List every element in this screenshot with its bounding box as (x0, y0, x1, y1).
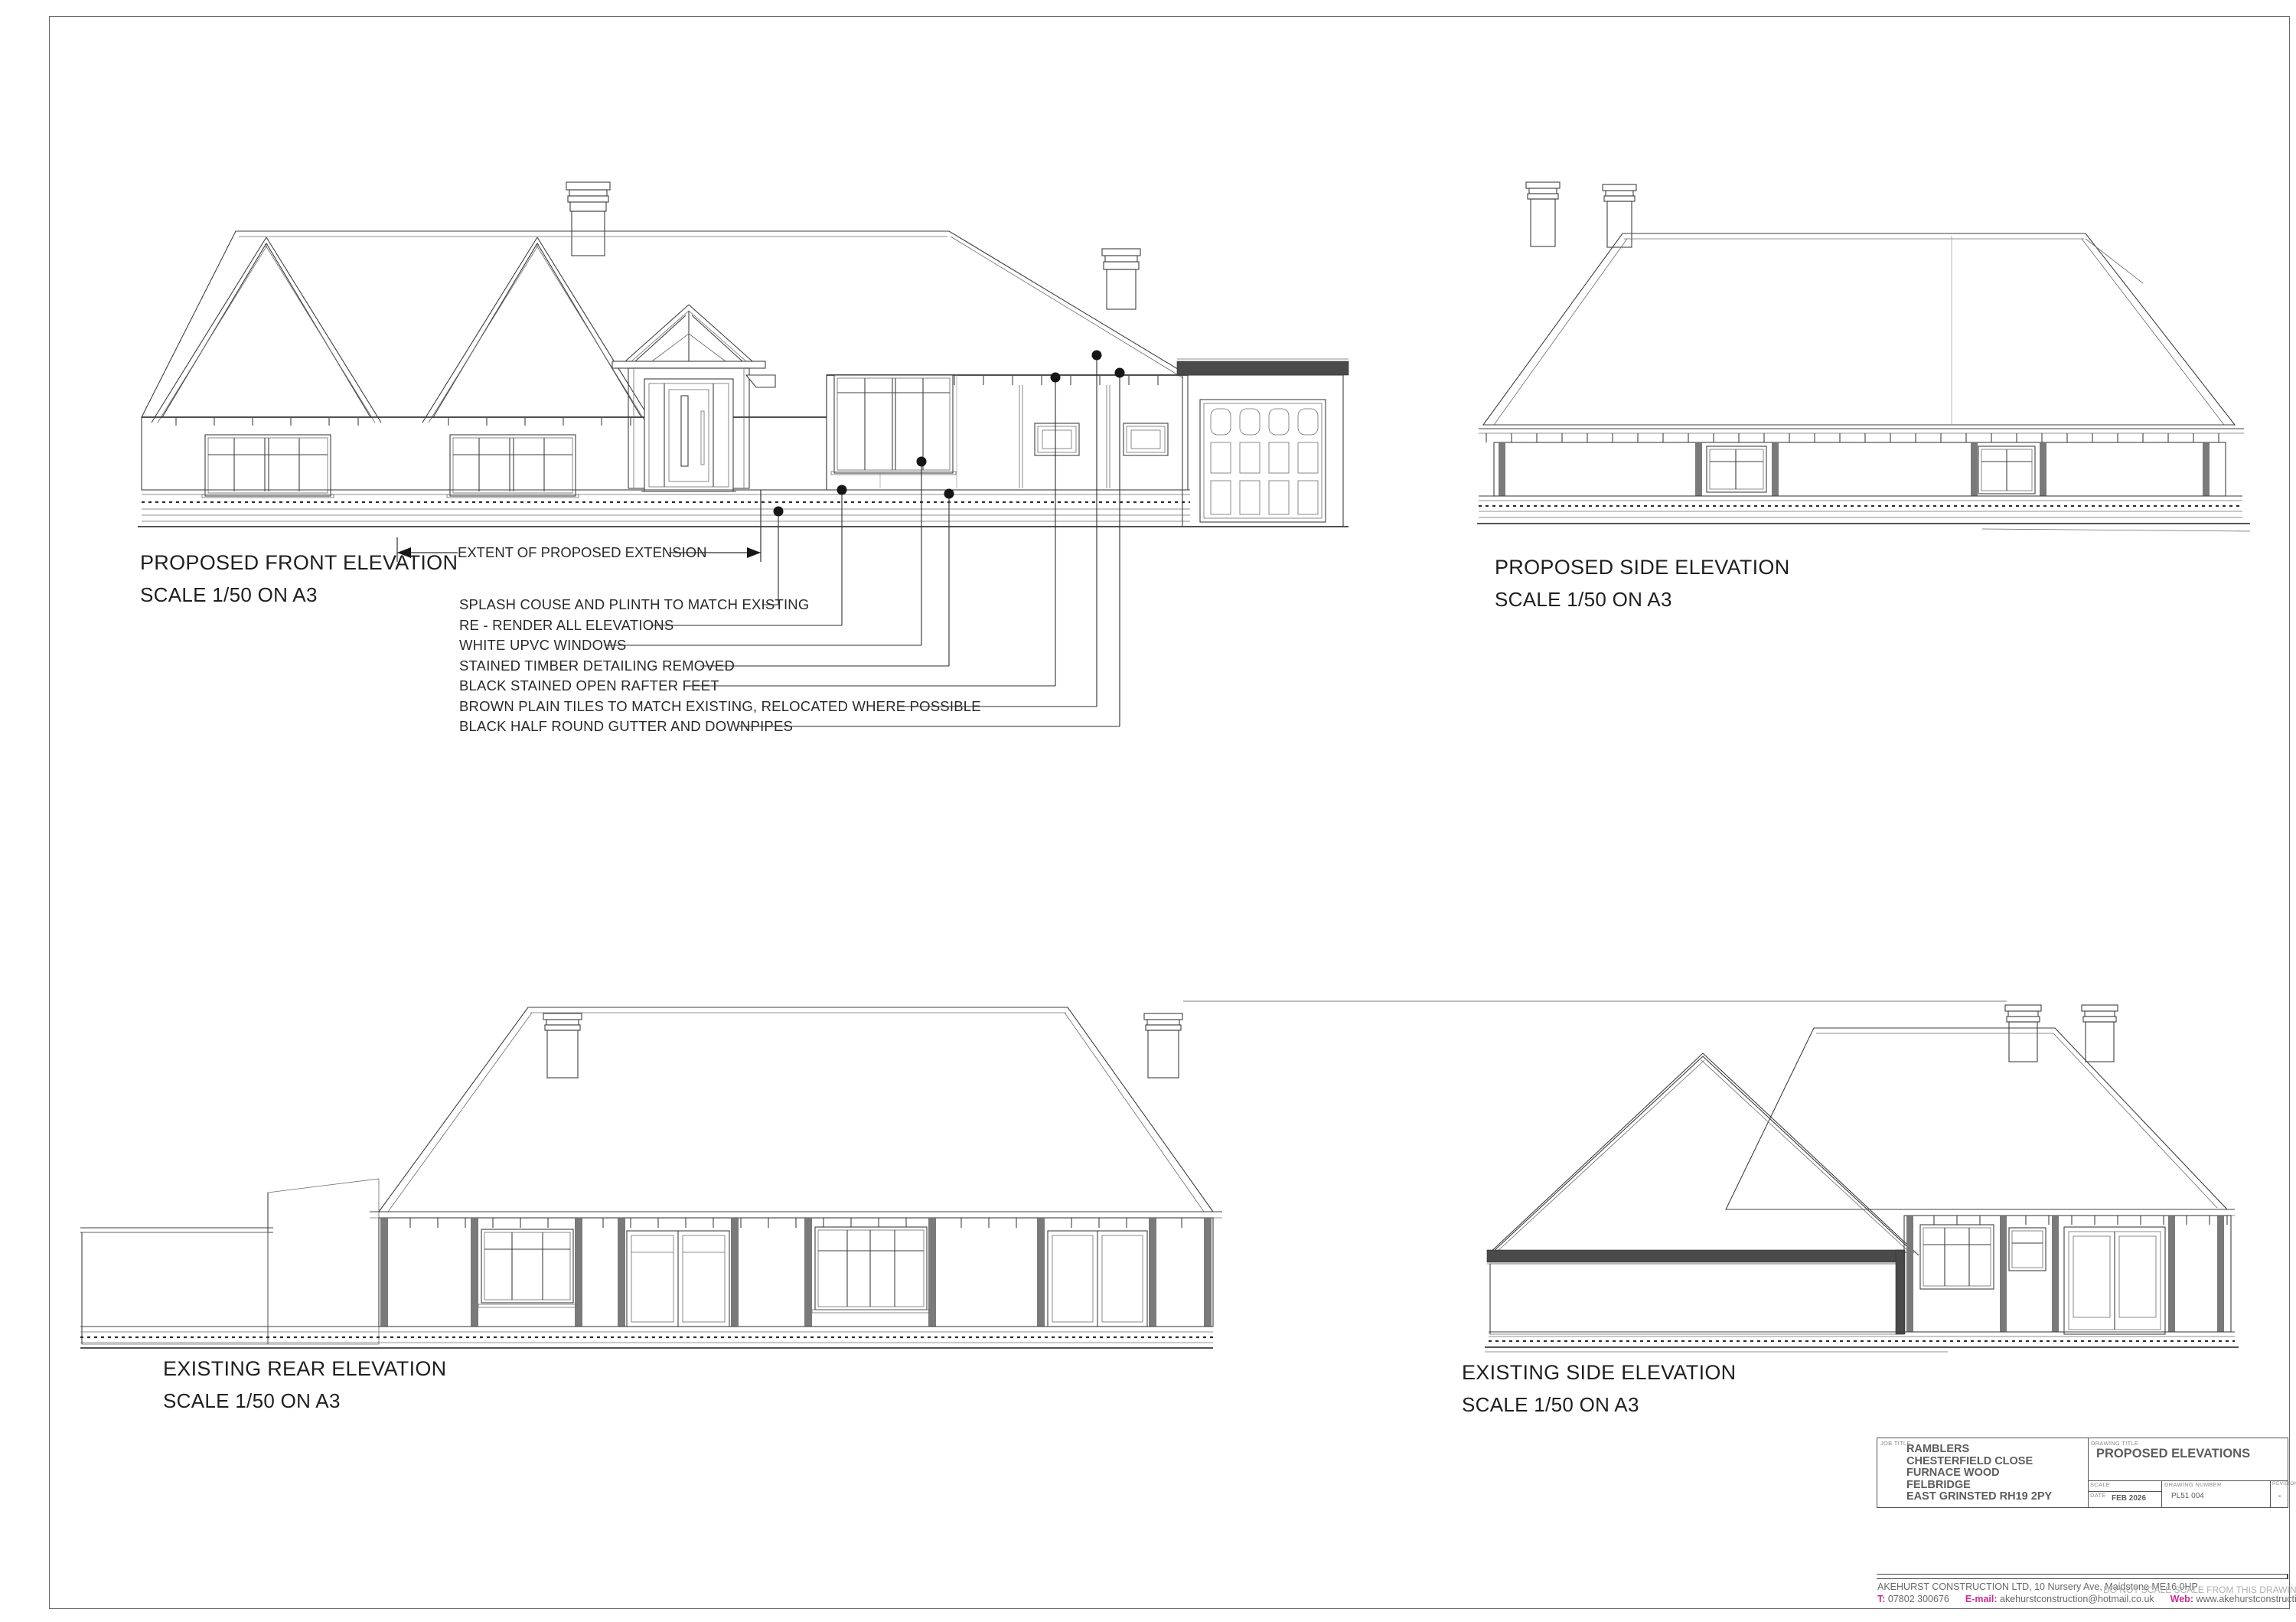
annotation-brown-tiles: BROWN PLAIN TILES TO MATCH EXISTING, REL… (459, 698, 981, 715)
window-2 (812, 1227, 930, 1313)
annotation-re-render: RE - RENDER ALL ELEVATIONS (459, 617, 673, 634)
footer-web-value: www.akehurstconstruction.co.uk (2196, 1594, 2296, 1604)
footer-tel-label: T: (1877, 1594, 1885, 1604)
side-structure (268, 1179, 379, 1344)
footer-email-label: E-mail: (1965, 1594, 1998, 1604)
front-door (641, 379, 736, 491)
footer-disclaimer: DO NOT SCALE SCALE FROM THIS DRAWING (2103, 1584, 2296, 1595)
garage-wall (1490, 1250, 1905, 1334)
eaves (370, 1212, 1222, 1228)
front-elevation-drawing (69, 170, 1351, 547)
window-1 (1920, 1225, 1994, 1289)
rear-elevation-scale: SCALE 1/50 ON A3 (163, 1389, 341, 1413)
chimney-1 (543, 1013, 582, 1078)
small-window (2009, 1228, 2046, 1271)
extent-of-extension-label: EXTENT OF PROPOSED EXTENSION (458, 544, 669, 561)
proposed-side-elevation-title: PROPOSED SIDE ELEVATION (1495, 556, 1790, 579)
annotation-upvc-windows: WHITE UPVC WINDOWS (459, 637, 626, 654)
small-window-2 (1124, 423, 1168, 455)
door-2 (1048, 1231, 1147, 1327)
title-block-divider (2088, 1438, 2089, 1507)
job-title-line: FELBRIDGE (1906, 1480, 2052, 1492)
gable-right (422, 237, 652, 426)
chimney-1 (566, 182, 610, 256)
eaves (1479, 429, 2244, 442)
existing-side-elevation-title: EXISTING SIDE ELEVATION (1462, 1361, 1736, 1385)
footer-tel-value: 07802 300676 (1888, 1594, 1949, 1604)
hipped-roof (379, 1007, 1213, 1212)
door-1 (627, 1231, 729, 1327)
front-elevation-title: PROPOSED FRONT ELEVATION (140, 551, 458, 575)
window-1 (478, 1229, 576, 1307)
chimney-1 (1526, 182, 1560, 246)
date-value: FEB 2026 (2112, 1494, 2146, 1503)
job-title-address: RAMBLERS CHESTERFIELD CLOSE FURNACE WOOD… (1906, 1444, 2052, 1503)
chimney-2 (1102, 249, 1140, 309)
drawing-number-value: PL51 004 (2171, 1492, 2204, 1500)
window-2 (1978, 446, 2035, 494)
eaves (1904, 1209, 2235, 1225)
chimney-2 (1144, 1013, 1182, 1078)
annotation-rafter-feet: BLACK STAINED OPEN RAFTER FEET (459, 677, 719, 694)
proposed-side-elevation-scale: SCALE 1/50 ON A3 (1495, 588, 1672, 612)
footer-divider-band (1877, 1574, 2288, 1579)
footer-email-value: akehurstconstruction@hotmail.co.uk (2000, 1594, 2154, 1604)
chimney-2 (2082, 1005, 2118, 1062)
revision-label: REVISION (2272, 1481, 2296, 1487)
window-2 (447, 435, 579, 498)
gable-left (152, 237, 381, 426)
footer-web-label: Web: (2170, 1594, 2193, 1604)
french-doors (2064, 1227, 2165, 1334)
footer-contact-line: T: 07802 300676 E-mail: akehurstconstruc… (1877, 1594, 2296, 1604)
proposed-side-elevation-drawing (1477, 175, 2258, 534)
title-block-vline (2270, 1480, 2271, 1507)
plinth (80, 1327, 1213, 1348)
scale-label: SCALE (2090, 1481, 2110, 1488)
window-1 (1707, 446, 1766, 492)
garage-fascia (1487, 1250, 1904, 1264)
garage (1177, 359, 1349, 527)
drawing-title-label: DRAWING TITLE (2091, 1440, 2138, 1447)
window-1 (202, 435, 334, 498)
annotation-splash-course: SPLASH COUSE AND PLINTH TO MATCH EXISTIN… (459, 596, 809, 613)
drawing-title-value: PROPOSED ELEVATIONS (2096, 1447, 2250, 1461)
annotation-gutter-downpipes: BLACK HALF ROUND GUTTER AND DOWNPIPES (459, 718, 793, 735)
small-window-1 (1035, 423, 1079, 455)
job-title-line: FURNACE WOOD (1906, 1467, 2052, 1480)
job-title-line: RAMBLERS (1906, 1444, 2052, 1456)
existing-rear-elevation-drawing (80, 986, 1450, 1353)
hipped-roof (1726, 1028, 2227, 1209)
job-title-line: EAST GRINSTED RH19 2PY (1906, 1491, 2052, 1503)
existing-side-elevation-drawing (1473, 986, 2292, 1353)
front-elevation-scale: SCALE 1/50 ON A3 (140, 583, 318, 607)
existing-side-elevation-scale: SCALE 1/50 ON A3 (1462, 1393, 1639, 1417)
plinth (1477, 496, 2250, 531)
garage-gable-roof (1487, 1053, 1919, 1255)
drawing-number-label: DRAWING NUMBER (2164, 1481, 2222, 1488)
job-title-line: CHESTERFIELD CLOSE (1906, 1456, 2052, 1468)
revision-value: - (2278, 1492, 2281, 1500)
date-label: DATE (2090, 1492, 2106, 1499)
rear-elevation-title: EXISTING REAR ELEVATION (163, 1357, 446, 1381)
annotation-timber-removed: STAINED TIMBER DETAILING REMOVED (459, 658, 735, 674)
window-3 (831, 375, 956, 475)
plinth (1485, 1332, 2239, 1352)
title-block-vline (2161, 1480, 2162, 1507)
hipped-roof (1483, 233, 2235, 425)
wall (1494, 442, 2226, 496)
title-block: JOB TITLE RAMBLERS CHESTERFIELD CLOSE FU… (1877, 1438, 2288, 1508)
